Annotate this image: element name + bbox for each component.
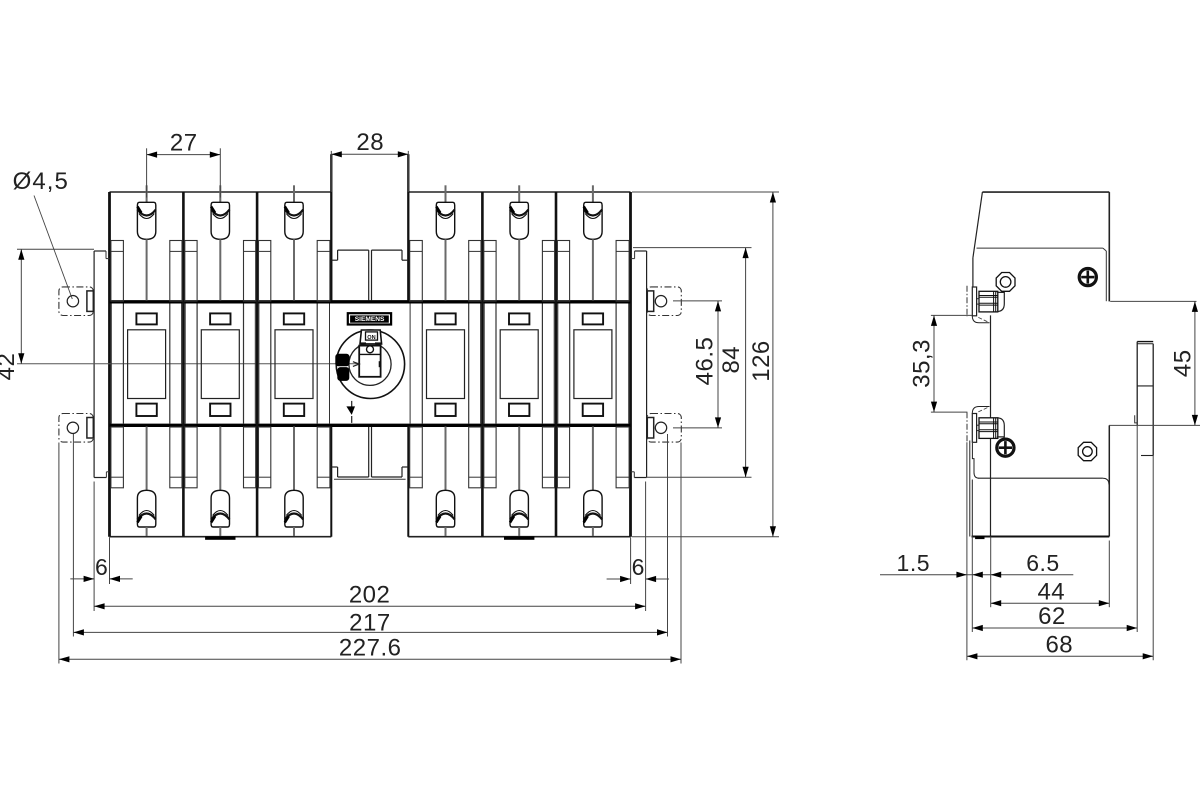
- svg-text:27: 27: [170, 130, 198, 157]
- svg-text:217: 217: [349, 609, 391, 636]
- svg-text:1.5: 1.5: [897, 550, 930, 576]
- svg-text:Ø4,5: Ø4,5: [13, 168, 69, 195]
- svg-text:46.5: 46.5: [692, 337, 719, 386]
- svg-text:202: 202: [349, 582, 391, 609]
- svg-text:227.6: 227.6: [339, 635, 402, 662]
- svg-text:28: 28: [356, 129, 384, 156]
- svg-text:35,3: 35,3: [909, 339, 936, 388]
- svg-text:68: 68: [1045, 631, 1073, 658]
- svg-text:84: 84: [718, 346, 745, 374]
- svg-text:SIEMENS: SIEMENS: [355, 316, 385, 323]
- svg-text:6: 6: [95, 554, 108, 580]
- svg-text:6.5: 6.5: [1026, 550, 1059, 576]
- svg-text:ON: ON: [367, 335, 375, 341]
- svg-text:42: 42: [0, 353, 20, 381]
- svg-text:126: 126: [748, 340, 775, 382]
- svg-text:44: 44: [1037, 578, 1065, 605]
- svg-text:6: 6: [632, 554, 645, 580]
- svg-text:62: 62: [1038, 603, 1066, 630]
- svg-text:45: 45: [1170, 349, 1197, 377]
